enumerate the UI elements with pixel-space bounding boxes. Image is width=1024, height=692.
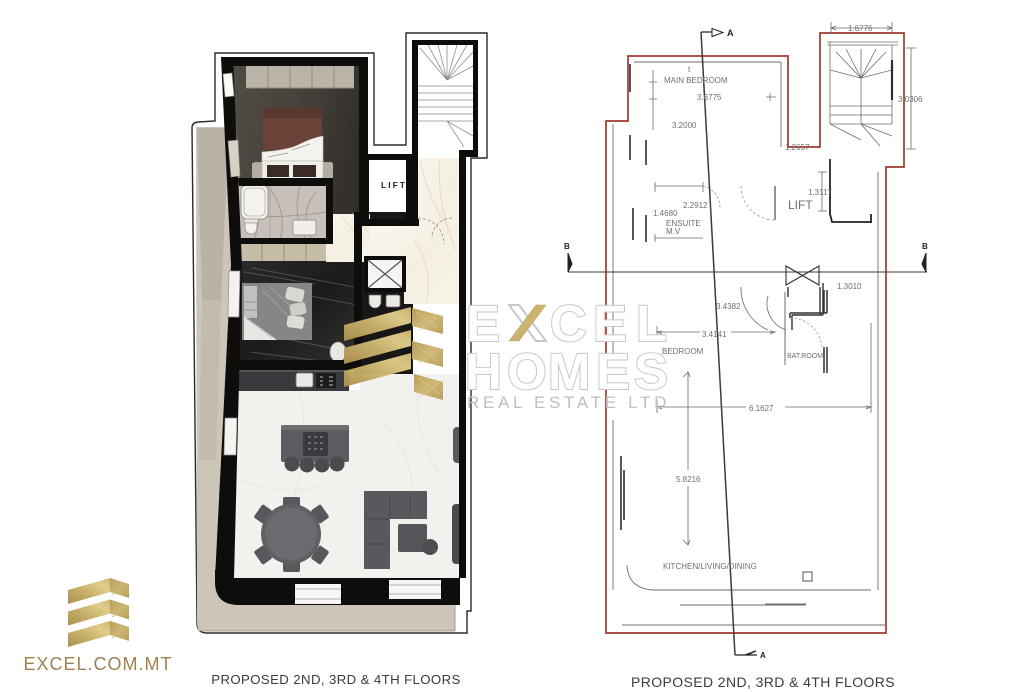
svg-text:BEDROOM: BEDROOM bbox=[662, 347, 704, 356]
svg-text:MAIN BEDROOM: MAIN BEDROOM bbox=[664, 76, 728, 85]
svg-text:BAT.ROOM: BAT.ROOM bbox=[787, 353, 823, 360]
svg-text:LIFT: LIFT bbox=[381, 180, 407, 190]
svg-text:H: H bbox=[465, 343, 502, 400]
svg-text:2.2912: 2.2912 bbox=[683, 201, 708, 210]
svg-text:3.6775: 3.6775 bbox=[697, 93, 722, 102]
svg-text:B: B bbox=[922, 242, 928, 251]
svg-text:REAL ESTATE LTD: REAL ESTATE LTD bbox=[467, 393, 671, 412]
svg-text:1.3010: 1.3010 bbox=[837, 282, 862, 291]
svg-text:B: B bbox=[564, 242, 570, 251]
svg-text:5.8216: 5.8216 bbox=[676, 475, 701, 484]
svg-text:1.3117: 1.3117 bbox=[808, 188, 832, 197]
svg-text:LIFT: LIFT bbox=[788, 198, 813, 212]
svg-text:1.4680: 1.4680 bbox=[653, 209, 678, 218]
svg-text:KITCHEN/LIVING/DINING: KITCHEN/LIVING/DINING bbox=[663, 562, 757, 571]
svg-text:PROPOSED 2ND, 3RD & 4TH FLOORS: PROPOSED 2ND, 3RD & 4TH FLOORS bbox=[211, 672, 460, 687]
svg-text:3.4141: 3.4141 bbox=[702, 330, 727, 339]
svg-text:S: S bbox=[634, 343, 668, 400]
svg-text:M: M bbox=[548, 343, 590, 400]
svg-text:1.6776: 1.6776 bbox=[848, 24, 873, 33]
svg-text:EXCEL.COM.MT: EXCEL.COM.MT bbox=[23, 654, 172, 674]
svg-text:3.0306: 3.0306 bbox=[898, 95, 923, 104]
svg-text:1.2657: 1.2657 bbox=[785, 143, 810, 152]
svg-text:3.4382: 3.4382 bbox=[716, 302, 741, 311]
svg-text:E: E bbox=[596, 343, 630, 400]
svg-text:A: A bbox=[727, 28, 734, 38]
svg-text:6.1627: 6.1627 bbox=[749, 404, 774, 413]
svg-text:A: A bbox=[760, 651, 766, 660]
svg-text:M.V: M.V bbox=[666, 227, 681, 236]
svg-text:PROPOSED 2ND, 3RD & 4TH FLOORS: PROPOSED 2ND, 3RD & 4TH FLOORS bbox=[631, 674, 895, 690]
svg-text:O: O bbox=[507, 343, 547, 400]
svg-text:3.2000: 3.2000 bbox=[672, 121, 697, 130]
